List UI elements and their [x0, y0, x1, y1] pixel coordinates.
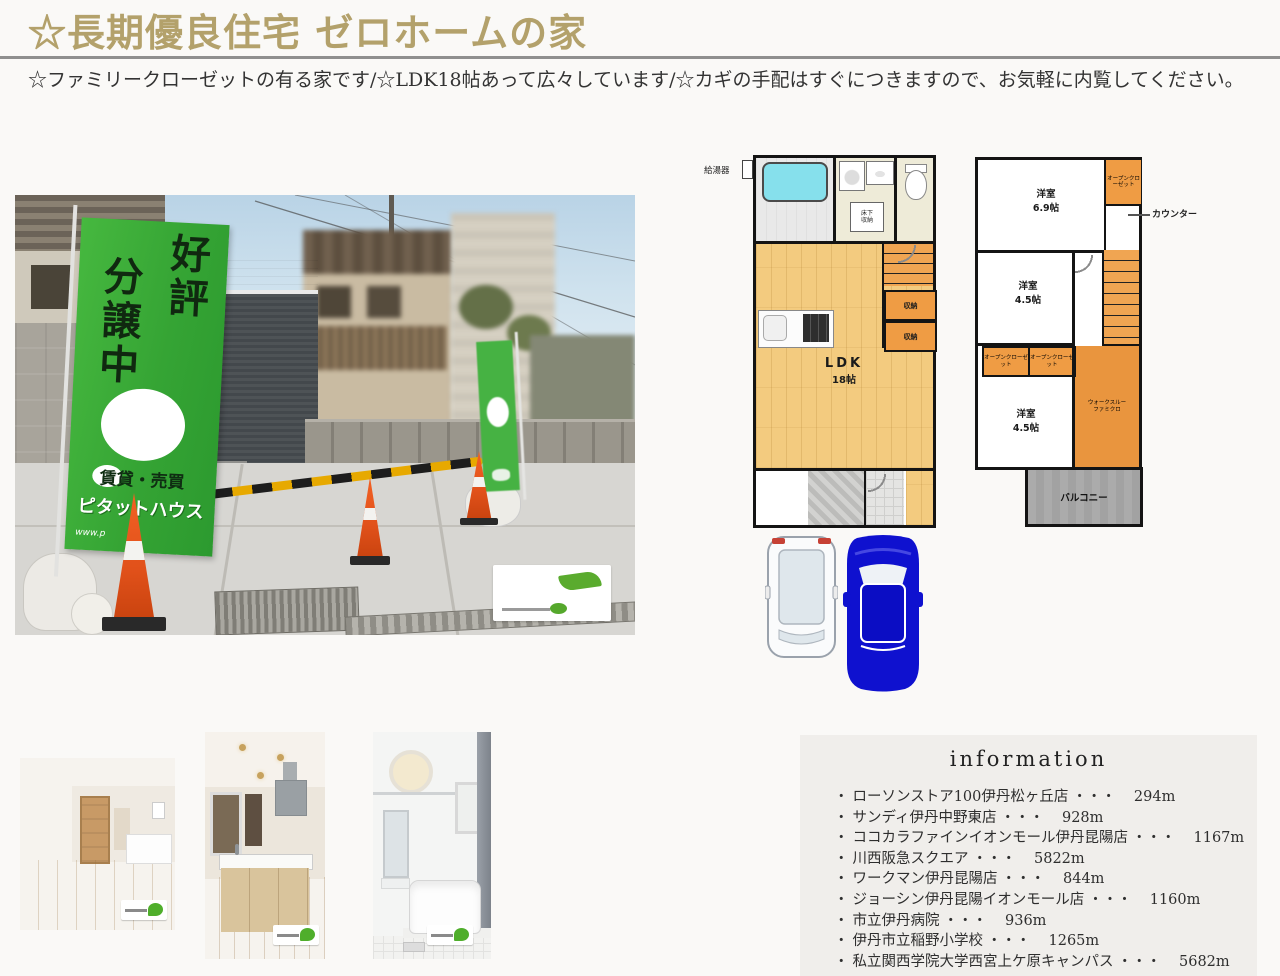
wood-door — [80, 796, 110, 864]
interior-photo-kitchen — [205, 732, 325, 959]
page-subtitle: ☆ファミリークローゼットの有る家です/☆LDK18帖あって広々しています/☆カギ… — [28, 66, 1258, 94]
hedge — [530, 335, 635, 431]
cone-body — [101, 493, 167, 620]
bedroom-69-label: 洋室 6.9帖 — [1006, 186, 1086, 214]
bath-counter — [381, 878, 410, 889]
underfloor-storage-label: 床下収納 — [861, 210, 874, 224]
bullet: ・ — [834, 913, 849, 929]
page-title: ☆長期優良住宅 ゼロホームの家 — [28, 2, 587, 57]
wall — [864, 471, 866, 525]
car-top-view-blue — [843, 532, 923, 694]
room-size: 4.5帖 — [988, 292, 1068, 306]
ldk-label: LDK 18帖 — [784, 356, 904, 386]
facility-distance: 1160m — [1150, 892, 1201, 908]
bullet: ・ — [834, 830, 849, 846]
info-item: ・サンディ伊丹中野東店・・・928m — [834, 808, 1247, 829]
watermark-text — [502, 608, 550, 611]
leaf-logo — [148, 903, 163, 916]
facility-name: ローソンストア100伊丹松ヶ丘店 — [853, 789, 1069, 805]
walkthrough-family-closet: ウォークスルー ファミクロ — [1075, 346, 1139, 467]
range-hood-duct — [283, 762, 297, 782]
information-panel: information ・ローソンストア100伊丹松ヶ丘店・・・294m ・サン… — [800, 735, 1257, 976]
dots: ・・・ — [1132, 830, 1176, 846]
stairs-2f — [1102, 250, 1139, 346]
facility-distance: 5822m — [1034, 851, 1085, 867]
kitchen-counter — [126, 834, 172, 864]
neighbor-window — [367, 286, 401, 318]
floorplan-2f: 洋室 6.9帖 オープンクローゼット 洋室 4.5帖 ウォークスルー ファミクロ… — [975, 157, 1142, 470]
kitchen-sink — [763, 315, 787, 341]
curtain — [245, 794, 262, 846]
bullet: ・ — [834, 810, 849, 826]
room-name: 洋室 — [1006, 186, 1086, 200]
drain-grate — [214, 587, 359, 635]
leaf-logo — [454, 928, 469, 941]
hall-floor — [906, 471, 933, 525]
traffic-cone — [349, 477, 391, 565]
storage-label: 収納 — [904, 301, 918, 311]
balcony: バルコニー — [1025, 467, 1143, 527]
dots: ・・・ — [1072, 789, 1116, 805]
water-heater-label: 給湯器 — [704, 164, 730, 176]
neighbor-house-right — [303, 230, 453, 428]
storage-closet: 収納 — [884, 290, 937, 321]
facility-distance: 294m — [1134, 789, 1175, 805]
storage-label: 収納 — [904, 332, 918, 342]
wall — [833, 158, 836, 241]
cone-base — [350, 556, 390, 565]
downlight — [277, 754, 284, 761]
facility-name: ココカラファインイオンモール伊丹昆陽店 — [853, 830, 1129, 846]
open-closet-label: オープンクローゼット — [984, 355, 1028, 368]
storage-closet: 収納 — [884, 321, 937, 352]
pitat-watermark — [493, 565, 611, 621]
downlight — [239, 744, 246, 751]
interior-photo-bathroom — [373, 732, 491, 959]
cone-body — [459, 451, 499, 519]
bathtub — [762, 162, 828, 202]
exterior-photo: 好評 分譲中 賃貸・売買 ピタットハウス www.p — [15, 195, 635, 635]
door-arc — [868, 474, 888, 494]
bullet: ・ — [834, 933, 849, 949]
floor-drain — [403, 942, 425, 952]
floorplan-1f: 床下収納 収納 収納 LDK 18帖 — [753, 155, 936, 528]
interior-photo-living — [20, 758, 175, 930]
cone-body — [349, 477, 391, 558]
watermark-text — [277, 934, 299, 937]
ceiling — [205, 732, 325, 787]
door-arc — [898, 245, 918, 265]
pitat-watermark — [121, 900, 167, 920]
traffic-cone — [101, 493, 167, 631]
counter-label: カウンター — [1152, 207, 1197, 220]
info-item: ・ココカラファインイオンモール伊丹昆陽店・・・1167m — [834, 828, 1247, 849]
cone-band — [362, 508, 379, 520]
pitat-watermark — [273, 925, 319, 945]
facility-distance: 1265m — [1049, 933, 1100, 949]
cone-band — [121, 541, 147, 560]
washing-machine — [839, 161, 865, 191]
cone-band — [471, 477, 487, 487]
bullet: ・ — [834, 954, 849, 970]
bedroom-45b-label: 洋室 4.5帖 — [986, 406, 1066, 434]
facility-distance: 928m — [1062, 810, 1103, 826]
room-name: 洋室 — [988, 278, 1068, 292]
subject-house-dark-wing — [215, 290, 318, 471]
ldk-size: 18帖 — [784, 371, 904, 386]
flyer-page: ☆長期優良住宅 ゼロホームの家 ☆ファミリークローゼットの有る家です/☆LDK1… — [0, 0, 1280, 976]
wall — [894, 158, 897, 241]
watermark-text — [431, 934, 453, 937]
open-closet-label: オープンクローゼット — [1106, 176, 1141, 189]
open-closet: オープンクローゼット — [1028, 346, 1076, 377]
traffic-cone — [459, 451, 499, 525]
garden-bush — [459, 285, 513, 329]
bullet: ・ — [834, 789, 849, 805]
dots: ・・・ — [1088, 892, 1132, 908]
room-size: 6.9帖 — [1006, 200, 1086, 214]
dots: ・・・ — [1118, 954, 1162, 970]
banner-cloud — [99, 387, 187, 463]
facility-name: 市立伊丹病院 — [853, 913, 940, 929]
banner-cloud — [486, 396, 510, 427]
dots: ・・・ — [944, 913, 988, 929]
toilet — [905, 170, 927, 200]
dots: ・・・ — [1000, 810, 1044, 826]
cone-base — [102, 617, 165, 631]
wall — [1072, 346, 1075, 467]
island-cabinet — [221, 868, 309, 932]
bullet: ・ — [834, 871, 849, 887]
balcony-label: バルコニー — [1060, 490, 1107, 504]
watermark-text — [125, 909, 147, 912]
facility-name: サンディ伊丹中野東店 — [853, 810, 997, 826]
wall — [1104, 204, 1106, 250]
neighbor-window — [31, 265, 71, 309]
open-closet-label: オープンクローゼット — [1030, 355, 1074, 368]
information-title: information — [800, 747, 1257, 771]
information-list: ・ローソンストア100伊丹松ヶ丘店・・・294m ・サンディ伊丹中野東店・・・9… — [834, 787, 1247, 972]
title-divider — [0, 56, 1280, 59]
neighbor-balcony — [309, 326, 447, 370]
leaf-logo — [558, 570, 602, 592]
dots: ・・・ — [1002, 871, 1046, 887]
pitat-watermark — [427, 925, 473, 945]
dots: ・・・ — [973, 851, 1017, 867]
famiclo-line2: ファミクロ — [1088, 407, 1126, 414]
facility-name: ジョーシン伊丹昆陽イオンモール店 — [853, 892, 1085, 908]
facility-distance: 1167m — [1194, 830, 1245, 846]
facility-name: 川西阪急スクエア — [853, 851, 969, 867]
facility-name: ワークマン伊丹昆陽店 — [853, 871, 998, 887]
info-item: ・私立関西学院大学西宮上ケ原キャンパス・・・5682m — [834, 952, 1247, 973]
banner-text-vertical: 好評 — [155, 231, 218, 322]
leaf-logo — [300, 928, 315, 941]
room-size: 4.5帖 — [986, 420, 1066, 434]
ceiling-light — [389, 750, 433, 794]
info-item: ・市立伊丹病院・・・936m — [834, 911, 1247, 932]
open-closet: オープンクローゼット — [982, 346, 1030, 377]
facility-distance: 936m — [1005, 913, 1046, 929]
banner-rental-label: 賃貸・売買 — [68, 462, 217, 495]
counter-pointer-line — [1128, 214, 1150, 216]
entrance-porch — [808, 471, 864, 525]
cone-base — [460, 518, 498, 525]
faucet — [235, 844, 239, 855]
water-heater-unit — [742, 160, 753, 179]
door-arc — [1075, 255, 1095, 275]
stove — [803, 314, 829, 342]
leaf-dot — [550, 603, 567, 614]
info-item: ・ワークマン伊丹昆陽店・・・844m — [834, 869, 1247, 890]
facility-distance: 5682m — [1179, 954, 1230, 970]
mirror — [383, 810, 409, 878]
famiclo-line1: ウォークスルー — [1088, 400, 1126, 407]
ldk-name: LDK — [784, 356, 904, 371]
facility-name: 私立関西学院大学西宮上ケ原キャンパス — [853, 954, 1114, 970]
open-closet: オープンクローゼット — [1104, 160, 1141, 206]
facility-distance: 844m — [1063, 871, 1104, 887]
neighbor-roof — [303, 230, 453, 274]
info-item: ・伊丹市立稲野小学校・・・1265m — [834, 931, 1247, 952]
bedroom-45a-label: 洋室 4.5帖 — [988, 278, 1068, 306]
range-hood — [275, 780, 307, 816]
wall — [978, 250, 1106, 253]
car-top-view-white — [765, 534, 838, 660]
banner-text-vertical: 分譲中 — [85, 254, 150, 389]
info-item: ・ローソンストア100伊丹松ヶ丘店・・・294m — [834, 787, 1247, 808]
info-item: ・ジョーシン伊丹昆陽イオンモール店・・・1160m — [834, 890, 1247, 911]
wall-panel — [152, 802, 165, 819]
facility-name: 伊丹市立稲野小学校 — [853, 933, 984, 949]
vanity-sink — [866, 161, 894, 185]
info-item: ・川西阪急スクエア・・・5822m — [834, 849, 1247, 870]
underfloor-storage: 床下収納 — [850, 202, 884, 232]
dots: ・・・ — [987, 933, 1031, 949]
bullet: ・ — [834, 851, 849, 867]
downlight — [257, 772, 264, 779]
room-name: 洋室 — [986, 406, 1066, 420]
neighbor-window — [317, 286, 351, 318]
kitchen-counter — [758, 310, 834, 348]
famiclo-label: ウォークスルー ファミクロ — [1088, 400, 1126, 413]
bullet: ・ — [834, 892, 849, 908]
